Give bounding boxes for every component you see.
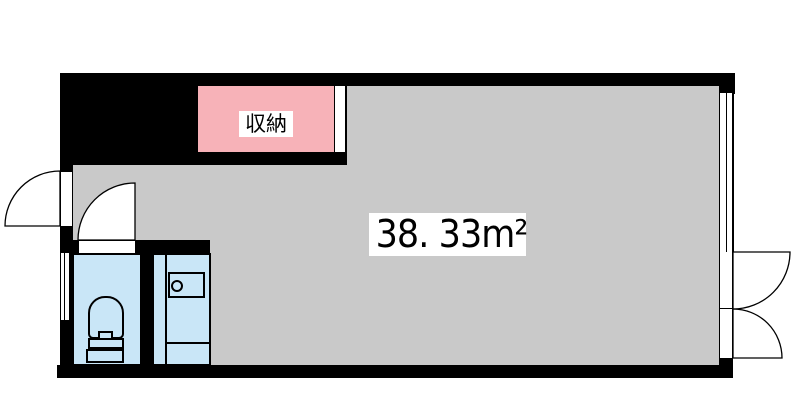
floorplan: 収納 38. 33m² (0, 0, 794, 413)
kitchenette-area (152, 253, 211, 366)
wall-bottom (57, 365, 733, 378)
wall-top (60, 73, 735, 86)
toilet-doorway (78, 241, 136, 253)
toilet-tank (86, 349, 124, 363)
right-door-upper-swing-icon (733, 252, 790, 309)
entrance-door-swing-icon (5, 171, 60, 226)
toilet-seat (88, 338, 124, 349)
main-room-area-lower (210, 240, 347, 365)
main-room-area-left (73, 165, 347, 240)
stove-burner-icon (171, 280, 183, 292)
area-label: 38. 33m² (369, 213, 526, 256)
kitchenette-base-line (165, 342, 210, 344)
storage-label: 収納 (239, 111, 293, 137)
kitchenette-counter-edge (165, 253, 167, 365)
wall-bottom-right-corner (719, 358, 733, 378)
left-window (60, 252, 70, 321)
entrance-doorway (60, 171, 73, 227)
right-doorway-meeting-line (719, 308, 734, 309)
right-door-lower-swing-icon (733, 309, 782, 358)
storage-closet-opening (334, 85, 346, 153)
area-label-text: 38. 33m² (376, 213, 528, 255)
right-window-mullion (726, 93, 727, 252)
right-doorway (719, 252, 734, 358)
left-window-mullion (64, 252, 65, 321)
